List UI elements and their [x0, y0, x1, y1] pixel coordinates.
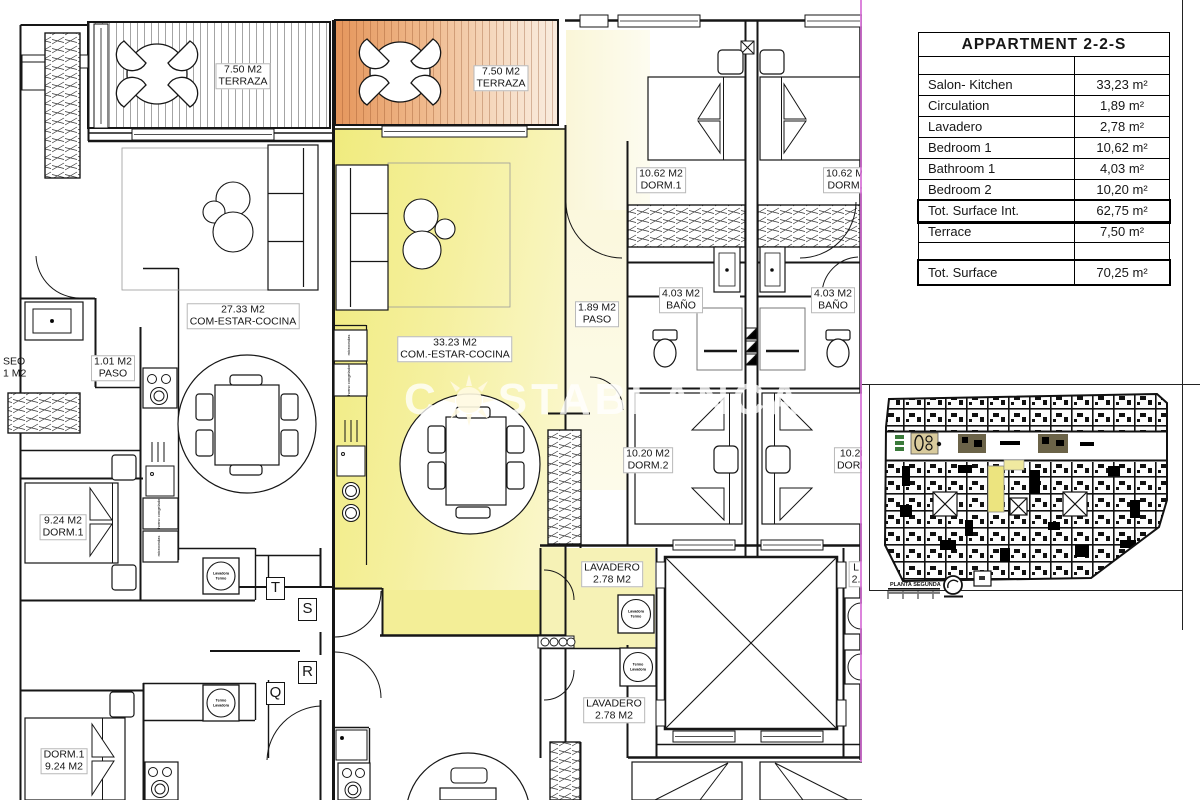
table-row: Salon- Kitchen33,23 m² — [919, 75, 1169, 96]
label-dorm1: 10.62 M2DORM.1 — [636, 167, 686, 193]
table-row-total-int: Tot. Surface Int.62,75 m² — [919, 201, 1169, 222]
door-letter-r: R — [298, 661, 317, 684]
scale-ticks — [888, 590, 933, 599]
area-table: APPARTMENT 2-2-S Salon- Kitchen33,23 m² … — [918, 32, 1170, 285]
table-row: Bedroom 110,62 m² — [919, 138, 1169, 159]
label-dorm1-cut: 10.62 MDORM. — [823, 167, 862, 193]
door-letter-q: Q — [266, 682, 285, 705]
label-dorm1-bottom: DORM.19.24 M2 — [41, 748, 88, 774]
label-dorm1-left: 9.24 M2DORM.1 — [40, 514, 87, 540]
label-lavadero-1: LAVADERO2.78 M2 — [581, 561, 643, 587]
boundary-line — [860, 0, 862, 762]
door-letter-s: S — [298, 598, 317, 621]
label-lavadero-2: LAVADERO2.78 M2 — [583, 697, 645, 723]
label-dorm2-cut: 10.20DORM — [834, 447, 862, 473]
area-table-title: APPARTMENT 2-2-S — [919, 33, 1169, 57]
label-paso-center: 1.89 M2PASO — [575, 301, 619, 327]
label-salon-center: 33.23 M2COM.-ESTAR-COCINA — [397, 336, 512, 362]
label-paso-left: 1.01 M2PASO — [91, 355, 135, 381]
floorplan-sheet: horno congelador microondas microondas — [0, 0, 1200, 800]
table-row: Bathroom 14,03 m² — [919, 159, 1169, 180]
label-aseo-edge: SEO1 M2 — [1, 356, 28, 380]
keyplan-highlighted-unit — [988, 466, 1004, 512]
label-dorm2: 10.20 M2DORM.2 — [623, 447, 673, 473]
table-row-total: Tot. Surface70,25 m² — [919, 261, 1169, 284]
table-row: Lavadero2,78 m² — [919, 117, 1169, 138]
door-letter-t: T — [266, 577, 285, 600]
label-bano-1: 4.03 M2BAÑO — [659, 287, 703, 313]
label-terraza-center: 7.50 M2TERRAZA — [473, 65, 528, 91]
table-row: Bedroom 210,20 m² — [919, 180, 1169, 201]
table-row: Circulation1,89 m² — [919, 96, 1169, 117]
table-row-empty — [919, 243, 1169, 261]
table-row-empty — [919, 57, 1169, 75]
key-plan: PLANTA SEGUNDA — [884, 392, 1174, 598]
compass-icon — [944, 576, 962, 594]
label-bano-2: 4.03 M2BAÑO — [811, 287, 855, 313]
sun-icon — [441, 372, 497, 428]
keyplan-caption-text: PLANTA SEGUNDA — [890, 582, 941, 588]
label-terraza-left: 7.50 M2TERRAZA — [215, 63, 270, 89]
label-salon-left: 27.33 M2COM-ESTAR-COCINA — [187, 303, 300, 329]
table-row: Terrace7,50 m² — [919, 222, 1169, 243]
costablanca-watermark: CSTABLANCA — [404, 372, 804, 428]
